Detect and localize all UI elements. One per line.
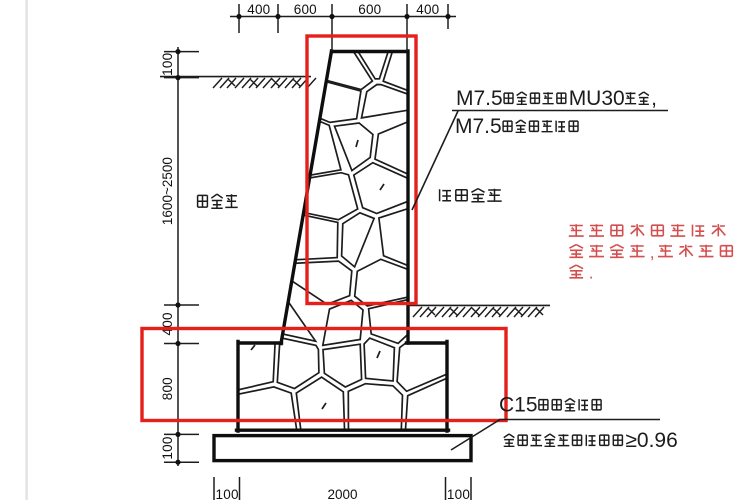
svg-text:100: 100 — [160, 437, 175, 460]
svg-text:1600~2500: 1600~2500 — [160, 157, 175, 225]
svg-text:100: 100 — [447, 487, 470, 500]
svg-text:M7.5: M7.5 — [456, 87, 503, 110]
svg-text:400: 400 — [416, 2, 439, 17]
svg-text:,: , — [650, 243, 655, 262]
svg-text:,: , — [651, 87, 657, 110]
svg-text:400: 400 — [247, 2, 270, 17]
svg-text:400: 400 — [160, 313, 175, 336]
svg-text:800: 800 — [160, 377, 175, 400]
svg-text:C15: C15 — [499, 394, 538, 417]
svg-text:MU30: MU30 — [569, 87, 625, 110]
svg-text:600: 600 — [358, 2, 381, 17]
svg-text:100: 100 — [216, 487, 239, 500]
svg-text:≥0.96: ≥0.96 — [625, 429, 677, 452]
svg-text:600: 600 — [294, 2, 317, 17]
svg-text:M7.5: M7.5 — [455, 115, 502, 138]
svg-text:2000: 2000 — [328, 487, 358, 500]
svg-text:100: 100 — [160, 53, 175, 76]
svg-text:.: . — [589, 264, 594, 283]
